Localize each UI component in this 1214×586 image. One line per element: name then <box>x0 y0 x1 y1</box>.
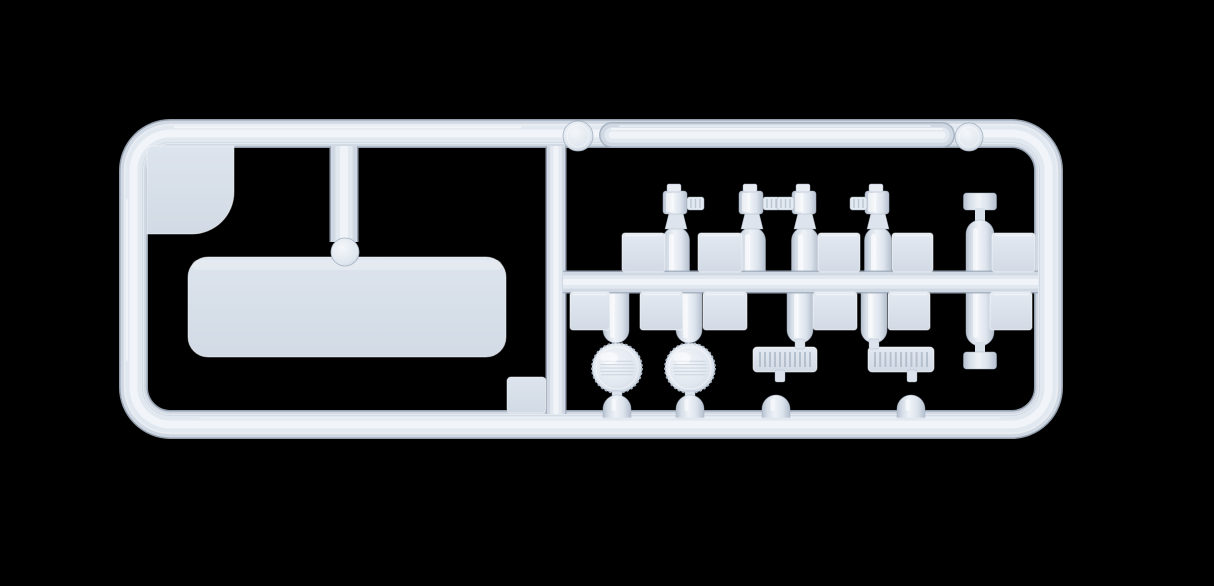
bottom-gate <box>897 395 925 418</box>
grille-neck <box>795 339 805 349</box>
knurled-cap <box>665 343 715 393</box>
vent-grille <box>868 347 934 372</box>
flat-square-top <box>698 233 742 272</box>
grille-neck <box>869 339 879 349</box>
small-plate <box>507 377 546 413</box>
top-rail-tube <box>612 129 942 135</box>
grille-neck <box>907 370 917 382</box>
flat-square-bottom <box>703 292 747 330</box>
bottom-gate <box>603 395 631 418</box>
bottom-gate <box>762 395 790 418</box>
flat-square-bottom <box>640 292 683 330</box>
large-panel <box>188 257 506 357</box>
flat-square-bottom <box>570 292 610 330</box>
flat-square-top <box>622 233 665 272</box>
gate-knob <box>563 121 593 151</box>
knurled-cap <box>592 343 642 393</box>
corner-plate <box>147 146 234 234</box>
grille-neck <box>775 370 785 382</box>
gate-knob <box>955 123 983 151</box>
sprue-render <box>0 0 1214 586</box>
flat-square-bottom <box>888 292 930 330</box>
flat-square-top <box>818 233 860 272</box>
feed-gate <box>331 238 359 266</box>
flat-square-bottom <box>990 292 1032 330</box>
flat-square-top <box>992 233 1035 272</box>
vent-grille <box>753 347 817 372</box>
flat-square-top <box>892 233 933 272</box>
sprue-photo <box>0 0 1214 586</box>
flat-square-bottom <box>813 292 857 330</box>
bottom-gate <box>676 395 704 418</box>
